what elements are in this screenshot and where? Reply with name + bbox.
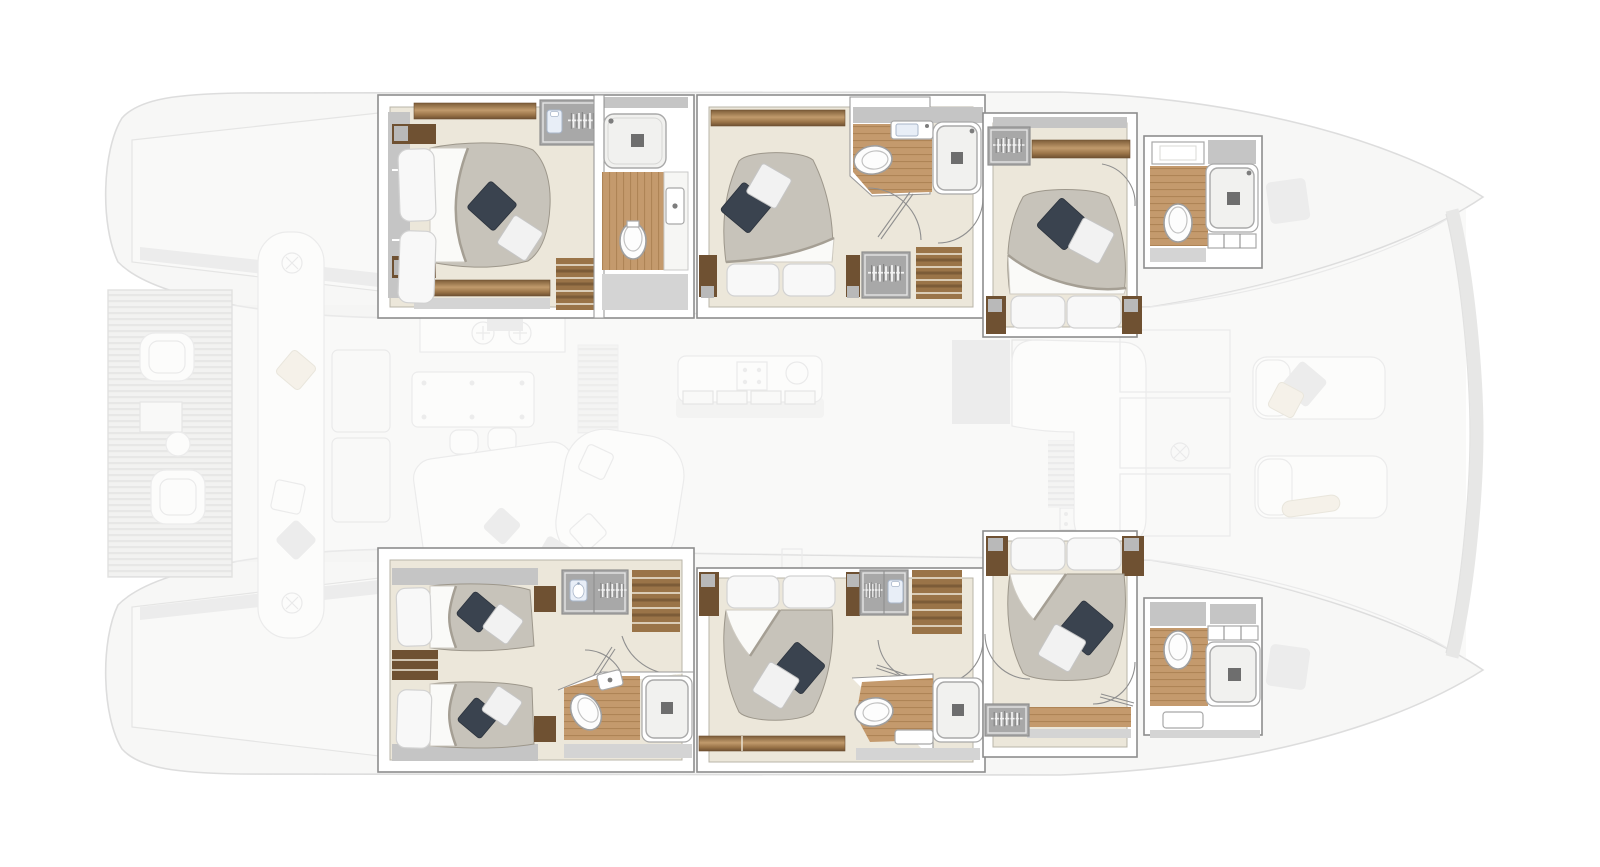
floorplan-canvas xyxy=(0,0,1600,867)
pillow xyxy=(1011,538,1065,570)
double-bed xyxy=(720,153,835,296)
nightstand xyxy=(699,255,717,298)
nightstand xyxy=(1122,536,1144,576)
sun-pad xyxy=(1255,456,1387,518)
cabin-stbd-mid xyxy=(697,568,985,772)
sun-pad xyxy=(1253,357,1385,419)
nightstand xyxy=(392,650,438,680)
stairs xyxy=(912,570,962,634)
pillow xyxy=(783,576,835,608)
cockpit-bench xyxy=(258,232,324,638)
pillow xyxy=(398,148,436,221)
shower-mixer xyxy=(608,118,613,123)
pillow xyxy=(398,230,436,303)
deck-armchair xyxy=(140,333,194,381)
nightstand xyxy=(699,572,719,616)
deck-armchair xyxy=(151,470,205,524)
shower xyxy=(1206,164,1258,232)
vanity-washbasin xyxy=(1208,626,1258,640)
cabin-port-aft xyxy=(378,95,694,318)
companionway-faded xyxy=(1048,440,1074,508)
twin-bed xyxy=(396,682,556,749)
double-bed xyxy=(724,576,835,720)
pillow xyxy=(396,689,432,748)
salon-louver xyxy=(578,345,618,433)
shower xyxy=(604,114,666,168)
nightstand xyxy=(986,296,1006,334)
shelf xyxy=(711,110,845,126)
pillow xyxy=(783,264,835,296)
shower xyxy=(933,678,983,742)
stairs xyxy=(916,247,962,299)
double-bed xyxy=(1008,190,1126,329)
bathroom-stbd-fwd xyxy=(1144,598,1262,738)
nightstand xyxy=(846,255,860,298)
nightstand xyxy=(392,124,436,144)
vanity-washbasin xyxy=(891,121,933,139)
stairs xyxy=(632,570,680,632)
wardrobe xyxy=(862,252,910,298)
bathroom-port-fwd xyxy=(1144,136,1262,268)
vanity-washbasin xyxy=(1208,234,1256,248)
salon-galley-aft xyxy=(420,318,565,352)
bed-foot-locker xyxy=(534,716,556,742)
toilet xyxy=(1164,204,1192,242)
vanity-washbasin xyxy=(666,188,684,224)
wardrobe xyxy=(988,127,1030,165)
foredeck-hatch xyxy=(1265,643,1310,690)
catamaran-floorplan xyxy=(0,0,1600,867)
bathroom-stbd-aft xyxy=(558,669,694,758)
shower xyxy=(1206,642,1260,706)
nightstand xyxy=(1122,296,1142,334)
bath-bench xyxy=(1163,712,1203,728)
shower-drain xyxy=(631,134,644,147)
shower xyxy=(933,122,981,194)
nightstand xyxy=(986,536,1008,576)
bench xyxy=(699,736,845,751)
pillow xyxy=(1067,296,1121,328)
galley-island xyxy=(676,356,824,418)
bed-foot-locker xyxy=(534,586,556,612)
bath-bench xyxy=(895,730,933,744)
nightstand xyxy=(846,572,860,616)
double-bed xyxy=(1008,538,1126,681)
wardrobe xyxy=(860,570,908,615)
deck-side-table xyxy=(140,402,182,432)
toilet xyxy=(1164,631,1192,669)
pillow xyxy=(727,264,779,296)
pillow xyxy=(1011,296,1065,328)
pillow xyxy=(396,587,432,646)
foredeck-hatch xyxy=(1265,177,1310,224)
cabin-port-mid xyxy=(697,95,985,318)
wardrobe xyxy=(985,704,1029,736)
galley-forward-unit xyxy=(952,340,1010,424)
cabin-stbd-aft xyxy=(378,548,694,772)
deck-round-table xyxy=(166,432,190,456)
wardrobe xyxy=(562,570,628,614)
shower xyxy=(642,676,692,742)
floor-wood-strip xyxy=(1027,707,1131,727)
shelf xyxy=(414,103,536,119)
pillow xyxy=(1067,538,1121,570)
pillow xyxy=(727,576,779,608)
shelf xyxy=(1032,140,1130,158)
stairs xyxy=(556,258,598,310)
